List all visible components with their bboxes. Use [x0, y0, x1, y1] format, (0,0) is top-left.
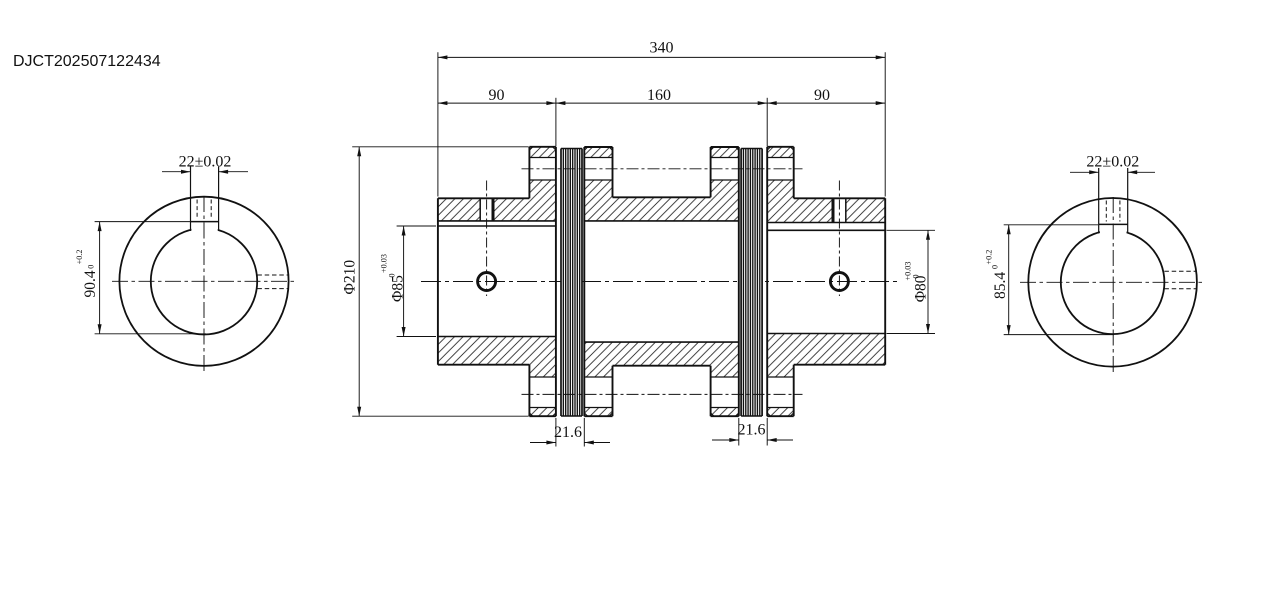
- svg-text:+0.03: +0.03: [380, 254, 389, 273]
- svg-text:+0.2: +0.2: [985, 250, 994, 265]
- svg-text:Φ210: Φ210: [342, 260, 359, 295]
- svg-text:340: 340: [650, 40, 674, 57]
- svg-text:+0.2: +0.2: [75, 250, 84, 265]
- svg-text:0: 0: [388, 273, 397, 277]
- svg-text:90: 90: [489, 87, 505, 104]
- svg-text:21.6: 21.6: [554, 424, 582, 441]
- svg-text:160: 160: [647, 87, 671, 104]
- svg-text:DJCT202507122434: DJCT202507122434: [13, 53, 161, 70]
- svg-text:22±0.02: 22±0.02: [1086, 153, 1139, 170]
- svg-text:Φ85: Φ85: [390, 275, 407, 302]
- svg-text:90: 90: [814, 87, 830, 104]
- svg-text:21.6: 21.6: [738, 422, 766, 439]
- svg-text:0: 0: [86, 265, 95, 269]
- svg-text:22±0.02: 22±0.02: [179, 153, 232, 170]
- svg-text:0: 0: [991, 265, 1000, 269]
- svg-text:85.4: 85.4: [992, 272, 1009, 299]
- svg-text:0: 0: [912, 274, 921, 278]
- svg-text:90.4: 90.4: [82, 270, 99, 297]
